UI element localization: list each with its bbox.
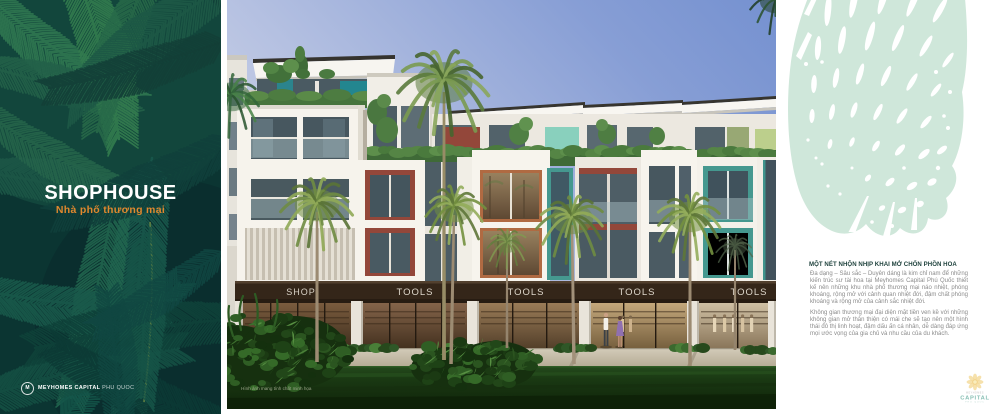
- svg-text:Hình ảnh mang tính chất minh h: Hình ảnh mang tính chất minh họa: [241, 386, 312, 391]
- svg-text:TOOLS: TOOLS: [396, 287, 433, 298]
- svg-text:SHOP: SHOP: [286, 287, 316, 297]
- svg-text:TOOLS: TOOLS: [618, 287, 655, 298]
- svg-text:PHU QUOC: PHU QUOC: [965, 402, 985, 404]
- svg-text:TOOLS: TOOLS: [507, 287, 544, 298]
- svg-text:MEYHOMES: MEYHOMES: [966, 392, 984, 395]
